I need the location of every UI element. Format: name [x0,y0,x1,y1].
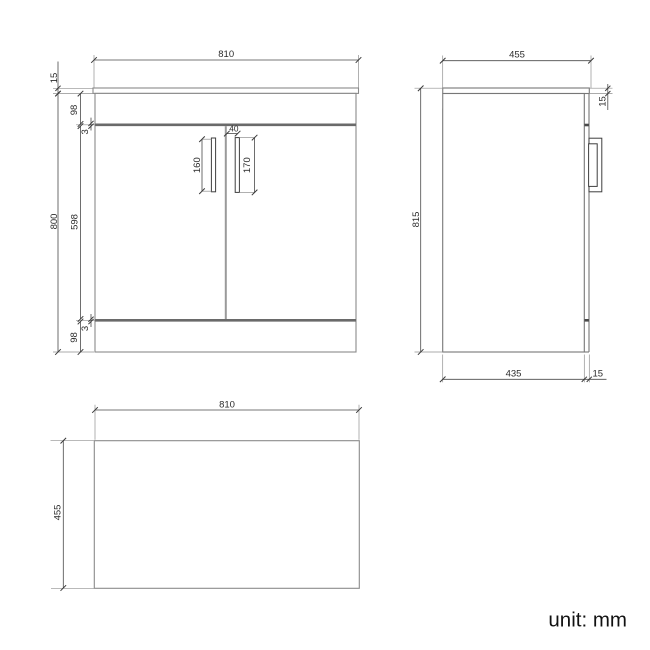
dim-top-rail: 98 [69,94,80,124]
dim-label-top-width: 810 [219,399,235,410]
front-view: 810 15 800 98 3 [49,49,359,352]
dim-label-side-depth: 455 [509,50,525,61]
technical-drawing-page: 810 15 800 98 3 [0,0,650,650]
dim-label-left-handle: 160 [192,157,203,173]
dim-door-height: 598 [70,126,81,319]
unit-label: unit: mm [548,609,627,632]
dim-label-carcass-depth: 435 [506,368,522,379]
dim-label-front-countertop: 15 [49,73,60,84]
dim-label-side-height: 815 [411,212,422,228]
dim-label-side-countertop: 15 [597,96,608,107]
dim-bottom-door-gap: 3 [80,314,94,331]
dim-label-top-gap: 3 [80,129,91,134]
side-door-gap-mark-top [585,124,589,127]
top-view: 810 455 [51,399,360,588]
side-door-gap-mark-bottom [585,319,589,322]
vanity-unit-drawing: 810 15 800 98 3 [0,0,650,650]
dim-bottom-rail: 98 [69,322,80,353]
dim-top-width: 810 [95,399,359,440]
left-door-handle [211,138,215,192]
side-cabinet-body [443,94,585,353]
dim-label-handle-offset: 40 [229,123,239,133]
dim-handle-offset: 40 [227,123,239,133]
side-view: 455 815 15 435 15 [411,50,612,383]
right-door-handle [235,138,239,193]
dim-label-front-height: 800 [49,214,60,230]
dim-front-overall-height: 800 [49,94,60,352]
side-handle-inner-profile [589,144,598,187]
side-countertop [443,88,590,94]
dim-side-bottom: 435 15 [443,355,607,383]
dim-top-door-gap: 3 [80,118,94,135]
front-countertop [93,88,359,93]
top-view-outline [94,441,359,589]
dim-front-overall-width: 810 [94,49,359,88]
dim-side-height: 815 [411,88,443,352]
dim-label-right-handle: 170 [242,157,253,173]
dim-label-top-rail: 98 [69,105,80,116]
dim-label-door-thickness: 15 [593,368,604,379]
dim-side-countertop-thickness: 15 [589,84,612,110]
dim-label-door-height: 598 [70,214,81,230]
dim-top-depth: 455 [51,441,94,588]
dim-front-countertop-thickness: 15 [49,62,92,97]
dim-label-bottom-rail: 98 [69,332,80,343]
dim-label-bottom-gap: 3 [80,326,91,331]
dim-label-front-width: 810 [218,49,234,60]
dim-label-top-depth: 455 [52,505,63,521]
